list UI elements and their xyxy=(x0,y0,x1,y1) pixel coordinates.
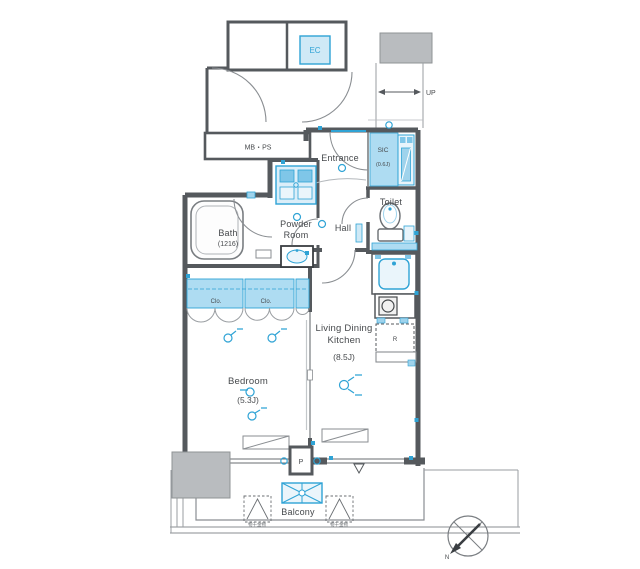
lamp-icon xyxy=(386,122,392,128)
closet-door-scallops xyxy=(187,308,309,322)
ceiling-light-icon xyxy=(268,334,276,342)
door-arc xyxy=(212,68,266,122)
vanity-sink xyxy=(281,246,313,267)
ceiling-light-icon xyxy=(224,334,232,342)
room-label-entrance: Entrance xyxy=(321,153,359,163)
ceiling-light-icon xyxy=(340,381,349,390)
powder-room-area xyxy=(276,166,316,267)
elevator-label: EC xyxy=(309,46,320,55)
front-door-arc xyxy=(330,132,368,170)
closet-label-left: Clo. xyxy=(211,299,222,305)
bath-counter xyxy=(256,250,271,258)
room-size-sic: (0.6J) xyxy=(376,162,390,168)
closet-area xyxy=(187,279,309,322)
shoe-closet-area xyxy=(368,132,414,186)
floor-plan: EC UP MB・PS Entrance SIC (0.6J) Toilet H… xyxy=(0,0,640,569)
room-label-powder-2: Room xyxy=(284,230,309,240)
closet-small xyxy=(296,279,309,308)
sliding-door xyxy=(307,312,313,438)
stair-up-arrow xyxy=(378,89,421,95)
closet-label-right: Clo. xyxy=(261,299,272,305)
stove xyxy=(375,294,415,318)
drying-bracket-left-icon xyxy=(244,496,271,522)
toilet-shelf xyxy=(404,226,414,241)
window-symbol-ldk xyxy=(322,429,368,442)
room-label-balcony: Balcony xyxy=(281,507,315,517)
room-label-sic: SIC xyxy=(378,147,389,154)
room-size-bath: (1216) xyxy=(218,241,238,248)
window-symbol-bedroom xyxy=(243,436,289,449)
kitchen-area xyxy=(372,254,416,366)
room-label-powder-1: Powder xyxy=(280,219,312,229)
door-arc xyxy=(322,250,355,283)
corridor-wall xyxy=(207,68,228,133)
ceiling-light-icon xyxy=(248,412,256,420)
drying-bracket-right-label: 物干金物 xyxy=(330,521,348,528)
mbps-label: MB・PS xyxy=(245,145,272,152)
toilet-fixture xyxy=(378,203,403,241)
washing-machine-pan xyxy=(276,166,316,204)
room-size-ldk: (8.5J) xyxy=(333,352,355,362)
room-label-bath: Bath xyxy=(218,228,237,238)
room-label-bedroom: Bedroom xyxy=(228,376,268,387)
neighbor-block-top xyxy=(380,33,432,63)
room-label-toilet: Toilet xyxy=(380,197,403,207)
room-size-bedroom: (5.3J) xyxy=(237,395,259,405)
floor-plan-drawing: EC UP MB・PS Entrance SIC (0.6J) Toilet H… xyxy=(0,0,640,569)
room-label-ldk-2: Kitchen xyxy=(327,335,360,346)
faucet-icon xyxy=(392,262,396,266)
toilet-counter xyxy=(372,243,417,250)
compass-icon xyxy=(448,516,488,556)
stairs-up-label: UP xyxy=(426,90,436,97)
door-arc xyxy=(342,198,368,224)
balcony-rail xyxy=(170,527,520,533)
neighbor-block-bottom xyxy=(172,452,230,498)
drying-bracket-left-label: 物干金物 xyxy=(248,521,266,528)
drying-bracket-right-icon xyxy=(326,496,353,522)
refrigerator-label: R xyxy=(393,337,398,343)
door-arc xyxy=(302,72,352,122)
room-label-hall: Hall xyxy=(335,223,351,233)
genkan-step-line xyxy=(312,179,366,184)
north-label: N xyxy=(445,555,449,561)
bath-area xyxy=(191,192,272,259)
ceiling-light-icon xyxy=(319,221,326,228)
stair-lines xyxy=(376,63,423,128)
hall-blue-fixture xyxy=(356,224,362,242)
pillar-label: P xyxy=(299,459,304,466)
ceiling-light-icon xyxy=(339,165,346,172)
shower-mark xyxy=(247,192,255,198)
evacuation-hatch-icon xyxy=(282,483,322,503)
room-label-ldk-1: Living Dining xyxy=(316,323,373,334)
